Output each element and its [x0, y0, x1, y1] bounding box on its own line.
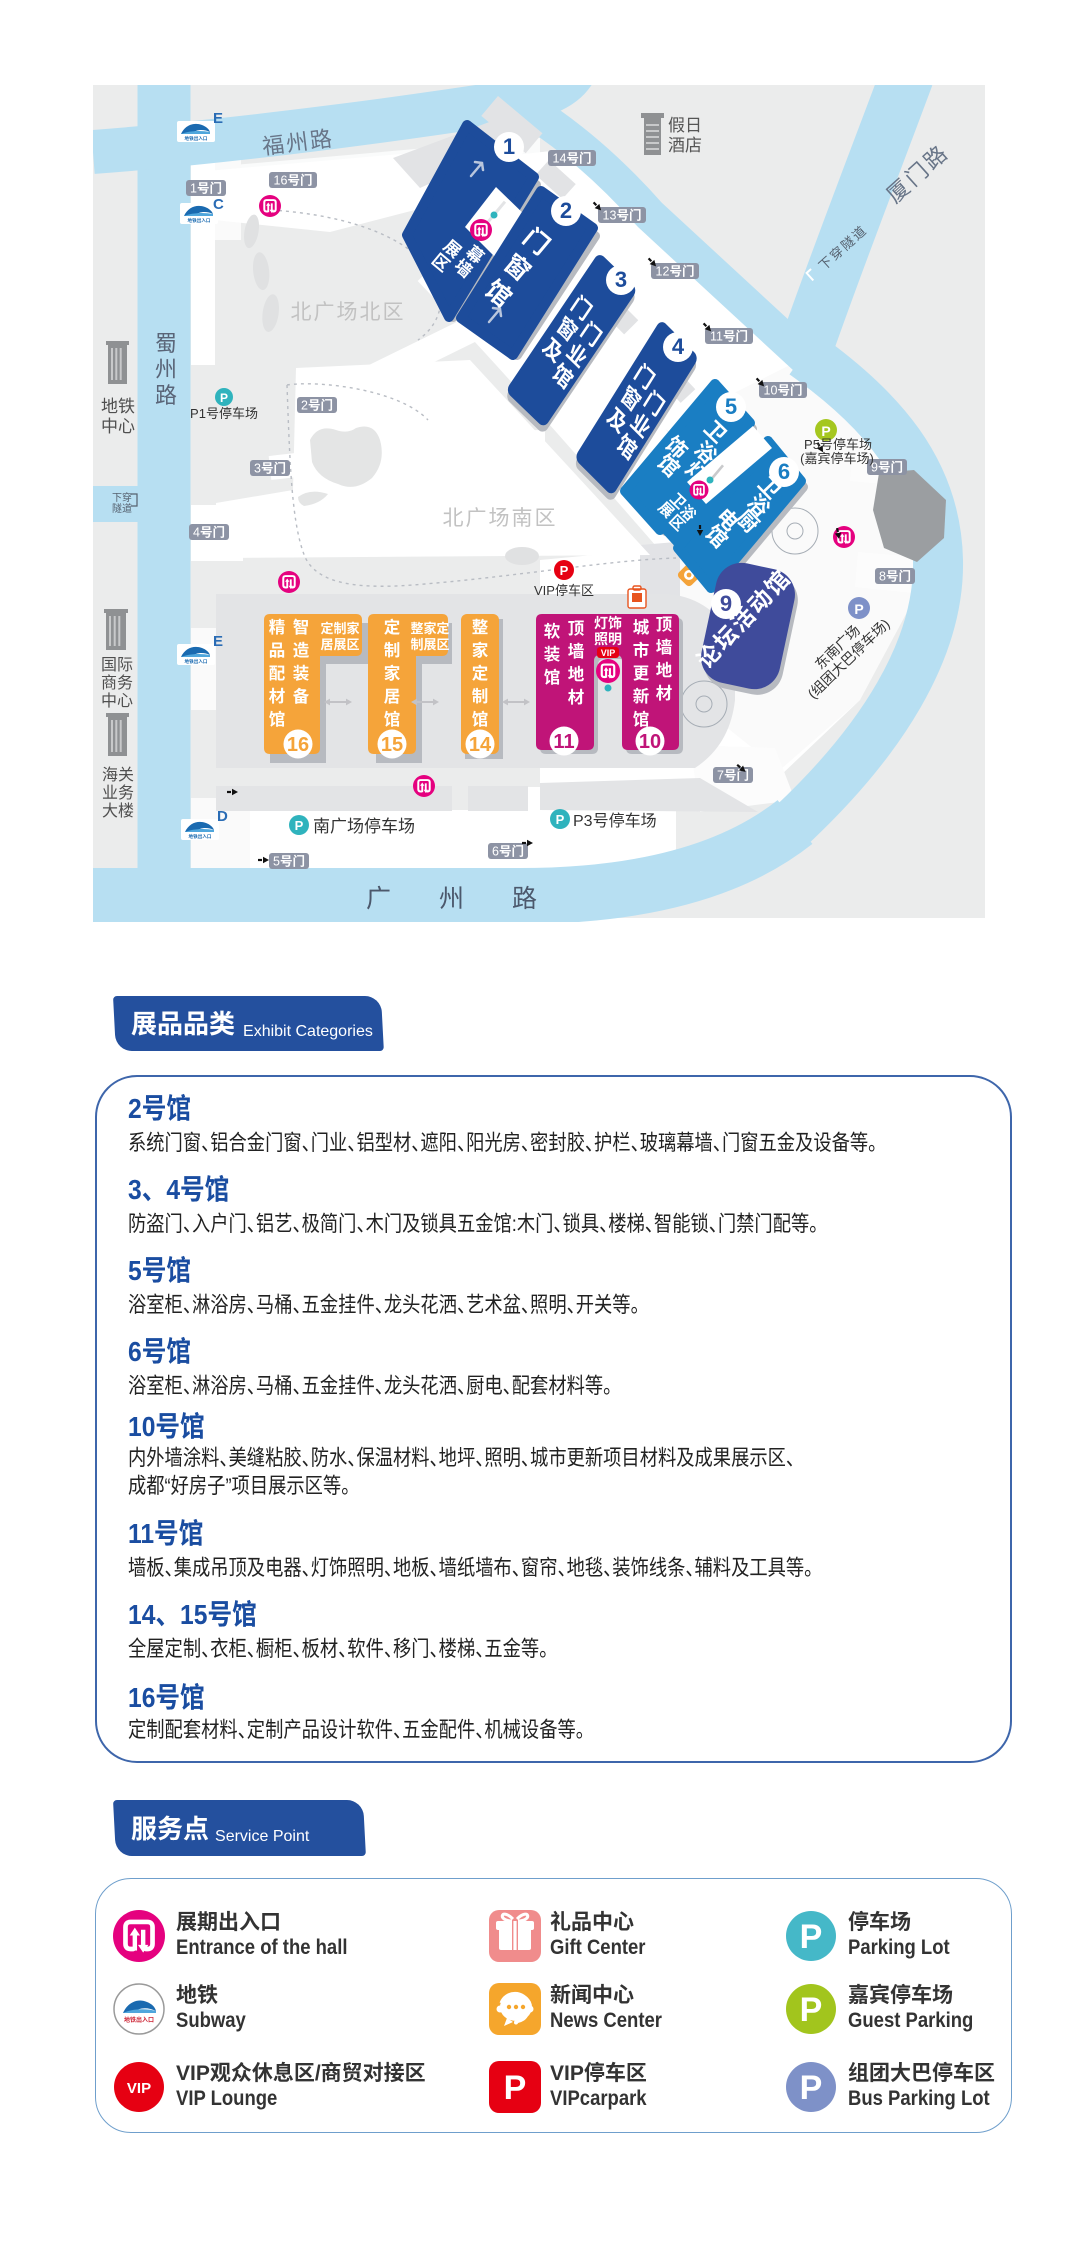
svg-text:制: 制 [472, 687, 489, 706]
svg-text:馆: 馆 [633, 709, 650, 729]
svg-text:居展区: 居展区 [320, 637, 359, 652]
svg-text:材: 材 [656, 684, 673, 703]
svg-text:P: P [295, 818, 304, 833]
svg-text:业务: 业务 [102, 784, 134, 802]
svg-text:14: 14 [469, 734, 492, 756]
svg-text:材: 材 [568, 688, 585, 707]
svg-text:E: E [213, 633, 223, 650]
svg-text:10号门: 10号门 [764, 383, 803, 398]
svg-text:P: P [560, 563, 569, 578]
svg-text:下穿: 下穿 [112, 491, 132, 504]
svg-text:家: 家 [472, 640, 489, 660]
svg-text:北广场北区: 北广场北区 [291, 301, 406, 324]
svg-text:假日: 假日 [668, 116, 702, 135]
svg-text:P: P [854, 601, 863, 617]
svg-text:2号门: 2号门 [301, 398, 333, 413]
svg-text:13号门: 13号门 [603, 208, 642, 223]
svg-text:新: 新 [633, 686, 650, 706]
svg-text:整: 整 [472, 618, 489, 637]
svg-text:路: 路 [512, 885, 537, 913]
svg-text:6: 6 [778, 459, 790, 484]
svg-text:品: 品 [269, 642, 286, 660]
svg-text:10: 10 [639, 731, 661, 753]
svg-text:精: 精 [269, 618, 286, 637]
svg-text:3号门: 3号门 [254, 461, 286, 476]
svg-text:4号门: 4号门 [193, 525, 225, 540]
svg-text:16号门: 16号门 [274, 173, 313, 188]
svg-text:居: 居 [384, 688, 401, 706]
svg-text:墙: 墙 [568, 642, 585, 661]
svg-text:馆: 馆 [544, 667, 561, 687]
svg-text:地: 地 [568, 665, 585, 684]
svg-text:定制家: 定制家 [320, 621, 359, 636]
svg-text:6号门: 6号门 [492, 844, 524, 859]
svg-text:3: 3 [615, 267, 627, 292]
svg-text:配: 配 [269, 665, 286, 683]
svg-text:家: 家 [384, 663, 401, 683]
svg-text:州: 州 [155, 357, 177, 382]
svg-text:广: 广 [366, 885, 391, 913]
svg-text:制展区: 制展区 [410, 637, 449, 652]
svg-text:照明: 照明 [594, 631, 622, 647]
svg-text:5号门: 5号门 [273, 854, 305, 869]
svg-text:地: 地 [656, 661, 673, 680]
svg-text:11号门: 11号门 [710, 329, 748, 344]
svg-text:P: P [800, 1991, 823, 2029]
svg-text:城: 城 [633, 617, 650, 637]
svg-text:备: 备 [293, 686, 310, 706]
svg-text:海关: 海关 [102, 766, 134, 784]
svg-text:P1号停车场: P1号停车场 [190, 406, 258, 421]
svg-text:顶: 顶 [568, 620, 585, 638]
svg-text:顶: 顶 [656, 616, 673, 634]
svg-text:智: 智 [293, 617, 310, 637]
svg-text:馆: 馆 [269, 709, 286, 729]
svg-text:馆: 馆 [384, 709, 401, 729]
svg-text:P3号停车场: P3号停车场 [573, 812, 657, 830]
svg-text:E: E [213, 110, 223, 127]
svg-text:整家定: 整家定 [410, 621, 449, 636]
svg-text:馆: 馆 [472, 709, 489, 729]
svg-text:VIP: VIP [601, 648, 616, 658]
svg-text:蜀: 蜀 [155, 331, 177, 356]
svg-text:装: 装 [293, 664, 310, 683]
svg-text:国际: 国际 [101, 656, 133, 674]
svg-text:更: 更 [633, 665, 650, 683]
svg-text:酒店: 酒店 [668, 136, 702, 155]
svg-text:P: P [504, 2069, 527, 2107]
svg-text:南广场停车场: 南广场停车场 [313, 817, 415, 836]
svg-text:制: 制 [384, 641, 401, 660]
svg-text:(嘉宾停车场): (嘉宾停车场) [800, 451, 874, 466]
svg-text:州: 州 [439, 885, 464, 913]
svg-text:P: P [556, 812, 565, 827]
svg-text:大楼: 大楼 [102, 802, 134, 820]
svg-text:隧道: 隧道 [112, 502, 132, 515]
svg-text:4: 4 [672, 334, 685, 359]
svg-text:2: 2 [560, 198, 572, 223]
svg-text:P: P [220, 391, 228, 405]
svg-text:14号门: 14号门 [553, 151, 592, 166]
svg-text:灯饰: 灯饰 [594, 615, 622, 631]
svg-text:P5号停车场: P5号停车场 [804, 437, 872, 452]
svg-text:C: C [213, 196, 224, 213]
svg-text:商务: 商务 [101, 674, 133, 692]
svg-text:16: 16 [287, 734, 309, 756]
svg-text:1: 1 [503, 134, 515, 159]
svg-text:8号门: 8号门 [879, 569, 911, 584]
svg-text:9: 9 [720, 591, 732, 616]
svg-text:VIP: VIP [127, 2080, 151, 2097]
svg-text:D: D [217, 808, 228, 825]
svg-text:5: 5 [725, 394, 737, 419]
svg-text:路: 路 [155, 383, 177, 408]
svg-text:材: 材 [269, 687, 286, 706]
svg-text:中心: 中心 [101, 417, 135, 436]
svg-text:北广场南区: 北广场南区 [443, 507, 558, 530]
svg-text:9号门: 9号门 [871, 460, 903, 475]
svg-text:定: 定 [472, 663, 489, 683]
svg-text:市: 市 [633, 640, 650, 660]
svg-text:VIP停车区: VIP停车区 [534, 583, 594, 598]
svg-text:地铁: 地铁 [101, 397, 135, 416]
svg-text:定: 定 [384, 617, 401, 637]
svg-text:P: P [800, 1918, 823, 1956]
svg-text:软: 软 [544, 622, 561, 641]
svg-text:11: 11 [553, 731, 574, 753]
svg-text:地铁出入口: 地铁出入口 [124, 2016, 154, 2024]
svg-text:中心: 中心 [101, 692, 133, 710]
svg-text:墙: 墙 [656, 638, 673, 657]
svg-text:P: P [800, 2069, 823, 2107]
svg-text:造: 造 [293, 641, 310, 660]
svg-text:1号门: 1号门 [190, 181, 222, 196]
svg-text:15: 15 [381, 734, 403, 756]
svg-text:装: 装 [544, 645, 561, 664]
svg-text:12号门: 12号门 [656, 264, 695, 279]
